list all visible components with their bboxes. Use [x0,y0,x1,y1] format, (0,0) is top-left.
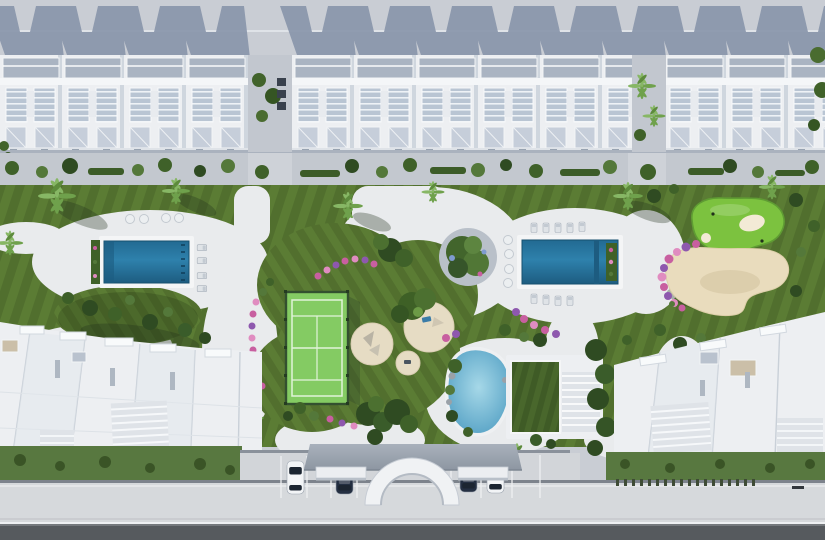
road [0,523,825,540]
masterplan-svg [0,0,825,540]
masterplan-render [0,0,825,540]
se-pergola [650,402,711,454]
right-pool [517,235,623,289]
padel-court [284,290,360,406]
passage-west [248,55,292,152]
car-1-white [287,461,304,494]
building-shadows [0,6,825,58]
lagoon-pool [445,349,511,438]
townhouse-row [0,55,825,153]
central-tree-bed [439,228,497,286]
passage-east [628,55,666,152]
sw-pergola [111,401,170,454]
left-pool [91,236,194,288]
promenade [0,153,825,187]
